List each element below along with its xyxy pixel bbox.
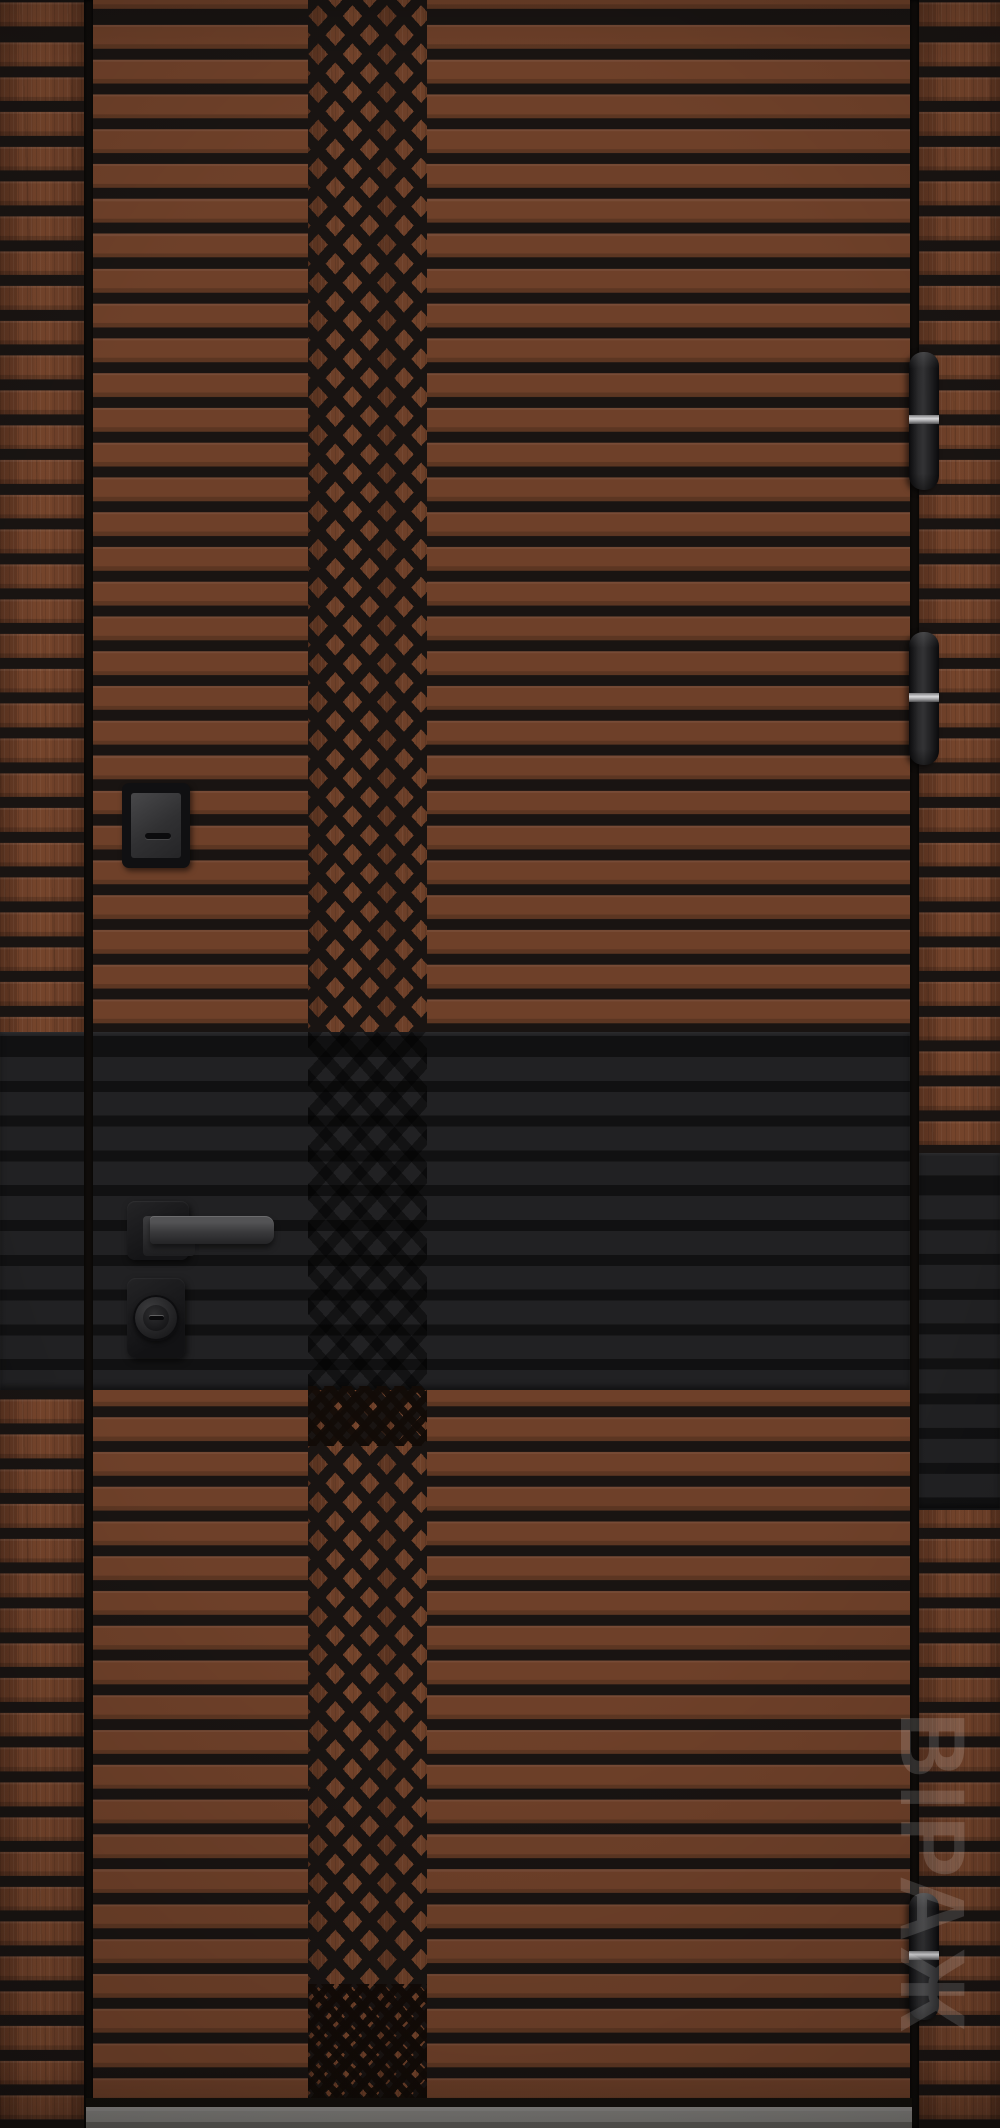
door-hinge-middle <box>909 632 939 765</box>
black-accent-band-frame-right <box>919 1153 1000 1510</box>
accent-band-lattice-grooves <box>308 1032 427 1390</box>
door-handle-lever <box>150 1216 274 1244</box>
lattice-dense-zone-bottom <box>308 1984 427 2106</box>
brand-watermark: ВІРАЖ <box>872 1712 992 2112</box>
lattice-dense-zone-below-band <box>308 1386 427 1446</box>
upper-lock-cover <box>122 783 190 868</box>
door-hinge-top <box>909 352 939 490</box>
cylinder-escutcheon <box>127 1278 185 1358</box>
keyhole-icon <box>149 1316 164 1320</box>
cylinder-core <box>143 1305 169 1331</box>
leaf-frame-gap-left <box>84 0 93 2128</box>
hinge-ring <box>909 693 939 702</box>
door-product-photo: ВІРАЖ <box>0 0 1000 2128</box>
keyhole-cover-slot-icon <box>145 833 171 839</box>
door-threshold <box>86 2098 912 2128</box>
upper-lock-cover-plate <box>131 793 181 858</box>
lock-cylinder <box>133 1295 179 1341</box>
hinge-ring <box>909 415 939 424</box>
